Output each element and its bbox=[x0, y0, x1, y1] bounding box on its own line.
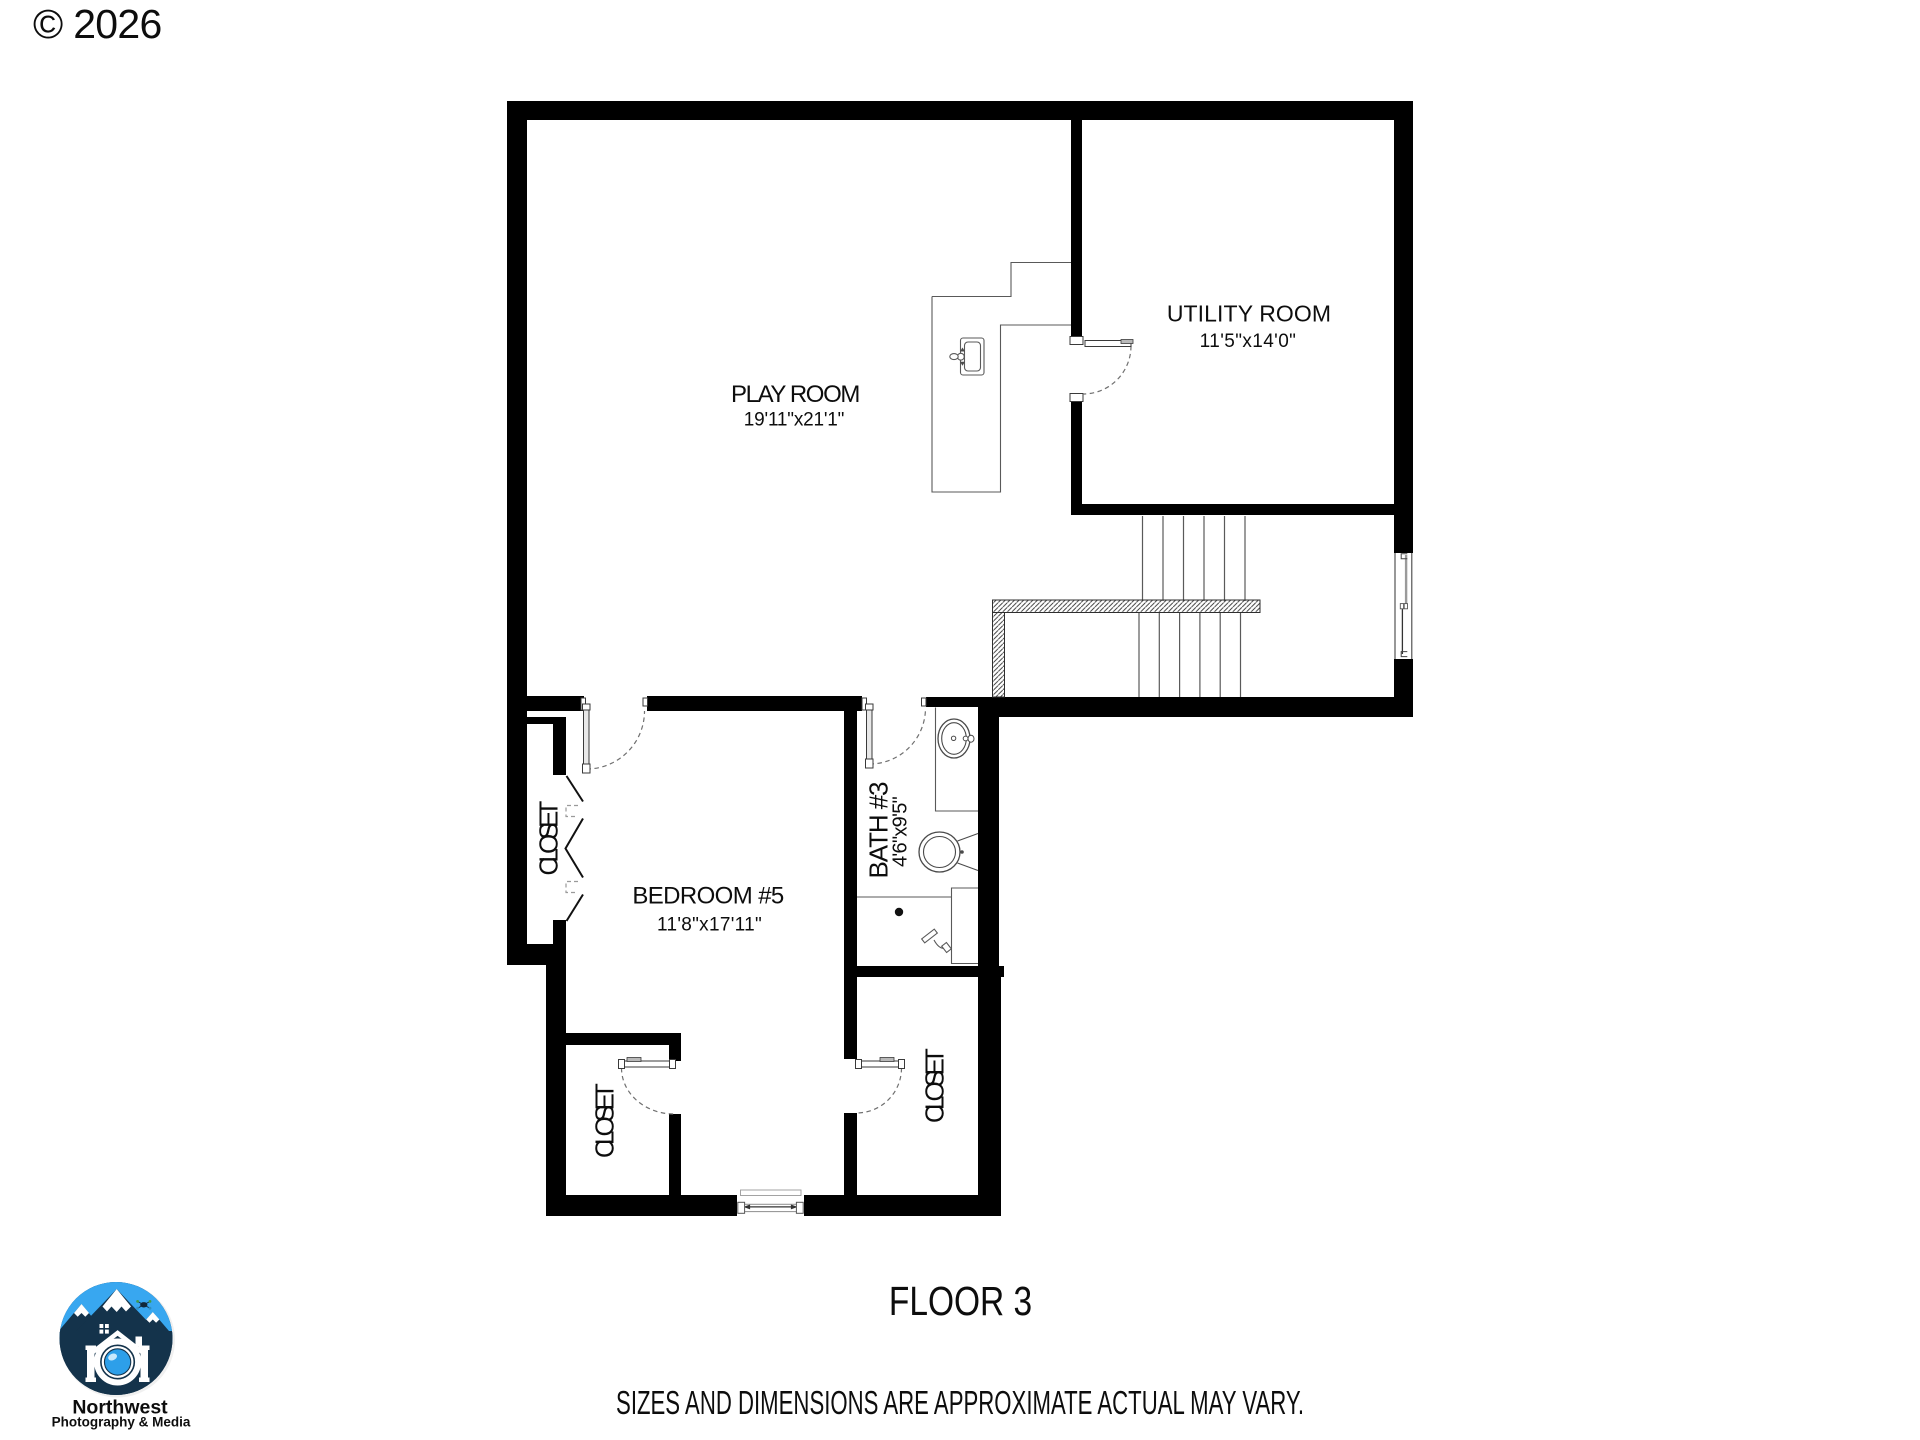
svg-text:CLOSET: CLOSET bbox=[534, 800, 564, 875]
svg-text:11'8"x17'11": 11'8"x17'11" bbox=[657, 915, 762, 936]
svg-text:CLOSET: CLOSET bbox=[590, 1083, 620, 1158]
svg-text:PLAY ROOM: PLAY ROOM bbox=[731, 381, 859, 408]
svg-text:BEDROOM #5: BEDROOM #5 bbox=[632, 883, 784, 910]
svg-text:19'11"x21'1": 19'11"x21'1" bbox=[744, 410, 844, 431]
svg-text:4'6"x9'5": 4'6"x9'5" bbox=[890, 796, 912, 867]
svg-text:FLOOR 3: FLOOR 3 bbox=[889, 1278, 1032, 1324]
svg-text:Photography & Media: Photography & Media bbox=[52, 1415, 191, 1430]
svg-text:CLOSET: CLOSET bbox=[920, 1048, 950, 1123]
svg-text:© 2026: © 2026 bbox=[33, 1, 162, 47]
svg-text:SIZES AND DIMENSIONS ARE APPRO: SIZES AND DIMENSIONS ARE APPROXIMATE ACT… bbox=[616, 1385, 1304, 1421]
svg-text:11'5"x14'0": 11'5"x14'0" bbox=[1200, 331, 1297, 352]
svg-text:UTILITY ROOM: UTILITY ROOM bbox=[1167, 301, 1331, 327]
